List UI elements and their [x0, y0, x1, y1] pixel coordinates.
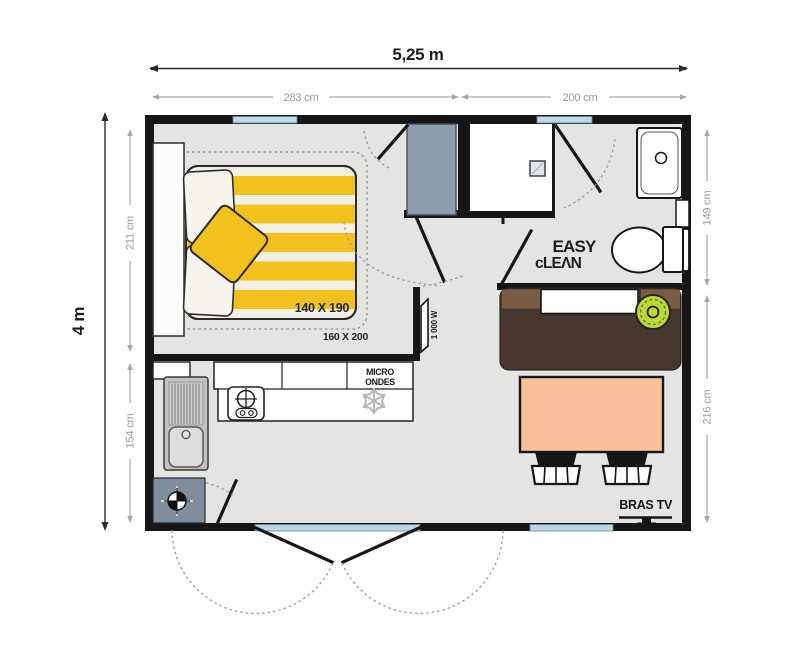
wall-bedroom-partition	[413, 287, 420, 361]
dim-height-left-bottom: 154 cm	[125, 414, 137, 449]
kitchen-sink	[164, 377, 208, 470]
shower-drain-icon	[530, 161, 545, 176]
floorplan-svg: 5,25 m 283 cm 200 cm 4 m 211 cm 154 cm	[0, 0, 805, 658]
microwave-label-line1: MICRO	[366, 367, 394, 377]
dim-width-total: 5,25 m	[392, 45, 443, 64]
dim-width-left: 283 cm	[284, 92, 319, 104]
wall-niche	[676, 200, 689, 227]
wall-tick	[502, 218, 505, 224]
dim-width-right: 200 cm	[563, 92, 598, 104]
bench-backrest	[541, 290, 638, 314]
dim-height-total: 4 m	[69, 307, 88, 336]
chair-left	[532, 452, 580, 484]
window-bottom-right	[530, 525, 613, 532]
pouf	[636, 295, 670, 329]
dimension-left-total: 4 m	[69, 112, 109, 531]
wall-bathroom-left	[458, 124, 470, 217]
french-door-left-leaf	[256, 528, 332, 562]
window-top-left	[233, 117, 297, 124]
dim-height-right-top: 149 cm	[702, 191, 714, 226]
dim-height-right-bottom: 216 cm	[702, 390, 714, 425]
french-door-right-leaf	[343, 528, 419, 562]
dim-height-left-top: 211 cm	[125, 216, 137, 250]
dimension-top-total: 5,25 m	[149, 45, 688, 72]
water-heater	[153, 478, 205, 523]
tv-bracket-label: BRAS TV	[619, 498, 673, 512]
dimension-top-segments: 283 cm 200 cm	[152, 92, 687, 104]
dining-table	[520, 377, 663, 452]
wall-bedroom-bottom	[145, 354, 420, 361]
chair-right	[603, 452, 651, 484]
toilet	[612, 227, 689, 273]
shower-frame	[552, 124, 555, 211]
wardrobe	[407, 124, 456, 215]
window-top-right	[537, 117, 592, 124]
bench-arm-left	[502, 290, 540, 309]
bed-size-label: 160 X 200	[323, 331, 369, 343]
bathroom-sink	[637, 128, 682, 198]
easy-clean-logo-line1: EASY	[552, 237, 597, 256]
french-door-glazing	[255, 525, 420, 532]
mattress-size-label: 140 X 190	[295, 301, 350, 315]
burner-icon	[228, 387, 264, 420]
drain-icon	[182, 431, 190, 439]
dimension-right-segments: 149 cm 216 cm	[702, 129, 714, 523]
dimension-left-segments: 211 cm 154 cm	[125, 129, 137, 523]
heater-power-label: 1 000 W	[430, 310, 439, 339]
microwave-label-line2: ONDES	[365, 377, 395, 387]
faucet-icon	[656, 153, 667, 164]
floorplan-page: 5,25 m 283 cm 200 cm 4 m 211 cm 154 cm	[0, 0, 805, 658]
bed-headboard	[153, 143, 184, 336]
easy-clean-logo-line2: cLEΛN	[535, 255, 582, 272]
